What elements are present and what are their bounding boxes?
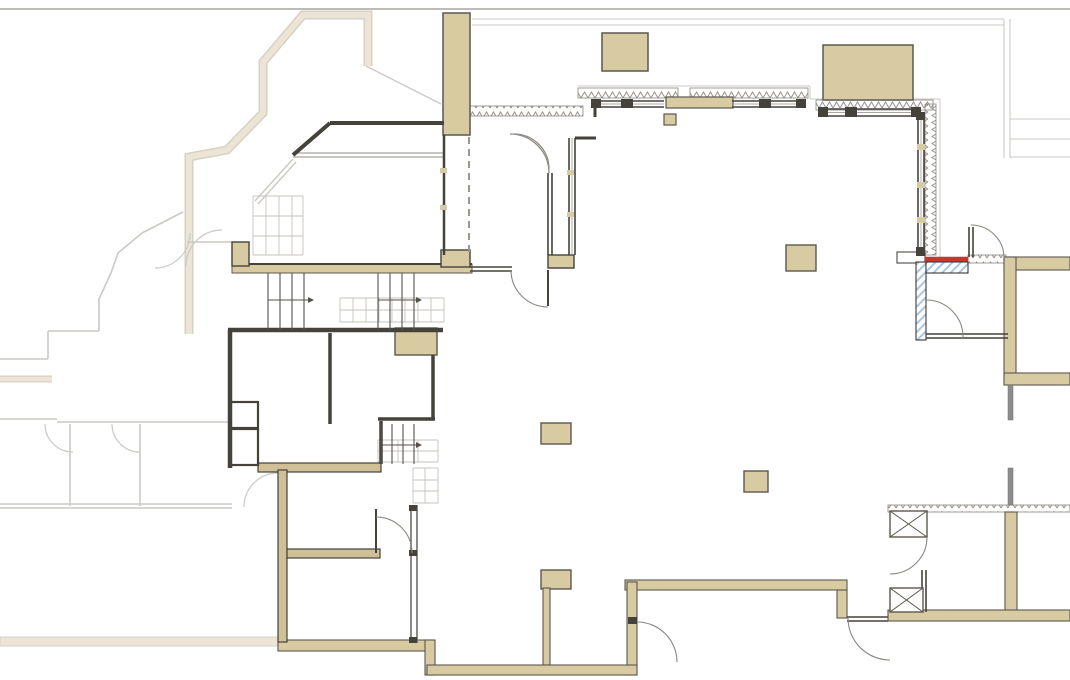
faint-grid xyxy=(253,196,303,255)
insulation-hatch xyxy=(470,106,583,116)
column xyxy=(443,13,470,135)
wall-cored xyxy=(258,463,381,472)
thin-wall xyxy=(926,334,1008,338)
stair-run xyxy=(381,424,422,464)
wall-block xyxy=(441,250,470,267)
window-jamb xyxy=(916,247,925,256)
wall-cored xyxy=(278,470,287,642)
curved-wall xyxy=(510,134,549,173)
window-jamb xyxy=(628,617,637,624)
faint-wall xyxy=(118,233,142,253)
window-jamb xyxy=(845,107,857,117)
wall-block xyxy=(232,242,249,266)
threshold-bar xyxy=(1008,385,1013,420)
wall-beige xyxy=(1004,257,1016,383)
wall-beige xyxy=(543,588,550,665)
faint-band xyxy=(0,637,278,646)
column xyxy=(786,245,816,271)
door-swing-arc xyxy=(637,622,677,662)
column xyxy=(541,423,571,444)
insulation-hatch xyxy=(925,104,936,255)
wall-beige xyxy=(232,264,472,273)
red-marker xyxy=(925,257,968,262)
door-swing-arc xyxy=(848,618,890,660)
door-leaf xyxy=(847,617,888,621)
door-leaf xyxy=(969,227,973,257)
wall-beige xyxy=(427,665,637,675)
faint-wall xyxy=(142,212,183,233)
threshold-bar xyxy=(1008,468,1013,505)
sill-tick xyxy=(567,170,574,175)
door-swing-arc xyxy=(971,225,1004,258)
wall-cored xyxy=(287,549,380,558)
wall-node xyxy=(409,637,417,643)
window-jamb xyxy=(796,99,806,108)
new-wall-hatch xyxy=(926,262,968,273)
door-swing-arc xyxy=(926,300,963,337)
faint-wall xyxy=(255,159,293,201)
wall-dark xyxy=(293,123,330,155)
faint-wall xyxy=(111,253,118,273)
faint-door-arc xyxy=(112,424,140,452)
faint-wall xyxy=(99,273,111,299)
stair-run xyxy=(378,273,422,330)
door-swing-arc xyxy=(511,270,548,307)
column xyxy=(744,471,768,492)
insulation-hatch xyxy=(578,88,678,98)
faint-grid xyxy=(340,298,444,322)
door-swing-arc xyxy=(890,537,927,574)
wall-beige xyxy=(625,580,847,590)
column xyxy=(823,45,913,100)
wall-beige xyxy=(837,590,847,618)
faint-grid xyxy=(378,440,438,462)
column xyxy=(664,114,676,125)
curved-wall xyxy=(514,134,549,169)
column xyxy=(602,33,648,71)
sill-tick xyxy=(440,168,447,173)
floor-plan-canvas xyxy=(0,0,1070,680)
lintel xyxy=(666,97,733,108)
floor-plan-page xyxy=(0,0,1070,680)
sill-tick xyxy=(917,217,925,223)
window-jamb xyxy=(591,99,601,108)
faint-wall xyxy=(366,66,441,104)
wall-beige xyxy=(278,640,427,651)
shaft-x-box xyxy=(890,588,923,612)
window-jamb xyxy=(759,99,771,108)
window-wall xyxy=(470,267,512,271)
wall-node xyxy=(409,505,417,511)
wall-beige xyxy=(1005,512,1017,612)
window-wall xyxy=(569,138,575,255)
sill-tick xyxy=(917,182,925,188)
faint-door-arc xyxy=(244,473,278,507)
sill-tick xyxy=(440,205,447,210)
wall-node xyxy=(409,550,417,556)
faint-wall xyxy=(258,162,296,204)
column xyxy=(541,570,571,589)
thin-wall xyxy=(548,173,552,255)
window-jamb xyxy=(916,112,925,120)
faint-door-arc xyxy=(45,424,73,452)
window-jamb xyxy=(818,107,828,117)
door-swing-arc xyxy=(376,517,412,553)
sill-tick xyxy=(917,144,925,150)
wall-beige xyxy=(1004,373,1070,385)
wall-block xyxy=(548,255,574,268)
sill-tick xyxy=(567,212,574,217)
duct-box xyxy=(230,429,258,465)
shaft-x-box xyxy=(890,511,927,537)
faint-grid xyxy=(413,468,438,503)
duct-box xyxy=(230,402,258,428)
new-wall-hatch xyxy=(916,262,926,340)
window-jamb xyxy=(621,99,633,108)
wall-gray xyxy=(411,505,417,643)
stair-run xyxy=(268,273,314,330)
wall-beige xyxy=(627,582,637,675)
